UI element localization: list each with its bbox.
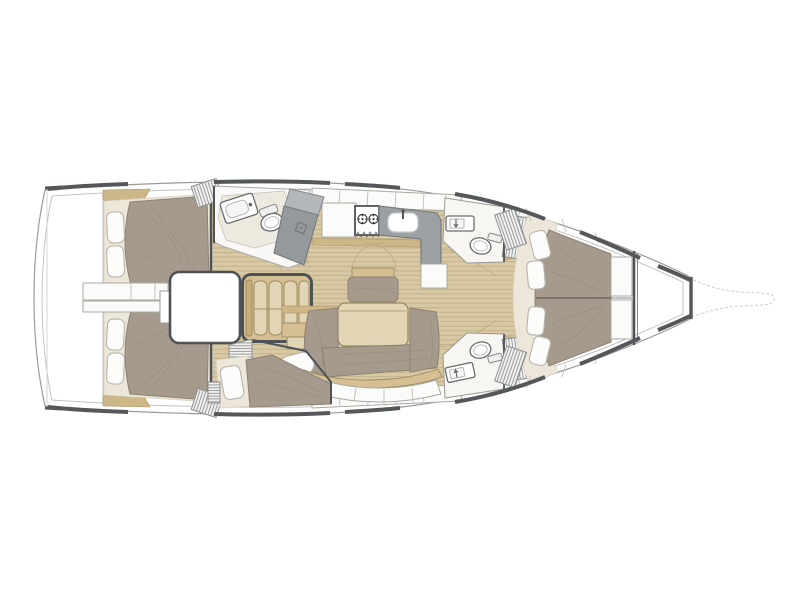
dining-table — [338, 303, 408, 346]
head-sink — [446, 216, 474, 231]
transom-corner — [45, 408, 62, 409]
yacht-floor-plan — [0, 0, 800, 600]
pillow — [526, 306, 545, 335]
nav-seat-block — [282, 323, 306, 337]
pillow — [106, 353, 125, 385]
pillow — [106, 212, 125, 244]
galley-cabinet-left — [322, 203, 356, 237]
pillow — [526, 260, 545, 289]
stove-burner — [369, 214, 378, 223]
galley-faucet-base — [401, 209, 404, 212]
bowsprit-outline — [693, 280, 774, 316]
engine-box — [170, 272, 240, 343]
hull-segment — [214, 413, 330, 415]
hull-segment — [214, 181, 330, 183]
ladder-rail — [246, 280, 252, 336]
transom-corner — [45, 187, 62, 188]
forward-step — [611, 257, 632, 296]
louvered-vent — [208, 382, 220, 403]
ladder-tread — [269, 281, 282, 335]
settee-right-arm — [410, 308, 439, 372]
forward-step — [611, 300, 632, 339]
galley-cabinet-end — [421, 264, 447, 288]
pillow — [106, 319, 125, 351]
bench-backrest — [352, 268, 394, 277]
ladder-tread — [254, 281, 267, 335]
stove-burner — [358, 214, 367, 223]
pillow — [106, 246, 125, 278]
floor-plan-canvas — [0, 0, 800, 600]
